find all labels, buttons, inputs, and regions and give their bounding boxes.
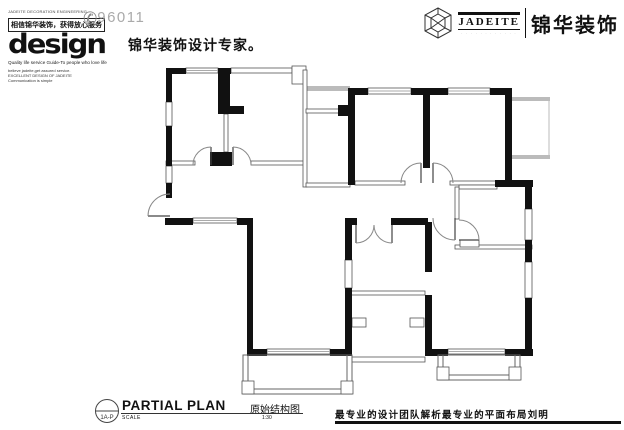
sub-line: Communication is simple: [8, 78, 138, 83]
title-underline: [121, 413, 303, 414]
balcony-right: [437, 355, 521, 380]
structural-walls: [165, 68, 533, 356]
jadeite-logo-block: JADEITE · · · · · · · · · · · · 锦华装饰: [423, 7, 619, 39]
logo-divider: [525, 8, 526, 38]
ledge: [512, 155, 550, 159]
drawing-tag-bubble: 1A-P: [94, 398, 120, 424]
drawing-sheet: JADEITE DECORATION ENGINEERING 相信锦华装饰，获得…: [0, 0, 624, 430]
floor-plan-drawing: [140, 55, 556, 403]
jadeite-wordmark: JADEITE · · · · · · · · · · · ·: [458, 12, 520, 35]
designer-note-cn: 最专业的设计团队解析最专业的平面布局刘明: [335, 407, 549, 421]
plan-title-en: PARTIAL PLAN: [122, 398, 226, 413]
brand-name-cn: 锦华装饰: [531, 9, 619, 38]
ledge: [512, 97, 550, 101]
gem-icon: [423, 7, 453, 39]
balcony-left: [242, 355, 353, 394]
scale-label: SCALE: [122, 415, 141, 421]
company-sub-lines: believe jadeite,get assured service. EXC…: [8, 68, 138, 84]
wordmark-top-bar: [458, 12, 520, 15]
phone-number: 96011: [97, 9, 145, 26]
company-tagline: Quality life service Guide-To people who…: [8, 60, 138, 65]
drawing-tag-text: 1A-P: [100, 415, 113, 421]
brand-slogan-cn: 锦华装饰设计专家。: [128, 35, 263, 55]
beam: [306, 86, 350, 91]
phone-icon: ✆: [83, 9, 97, 28]
service-phone: ✆96011: [83, 9, 145, 29]
jadeite-subtext: · · · · · · · · · · · ·: [458, 29, 520, 35]
design-logo: design: [8, 33, 138, 56]
jadeite-text: JADEITE: [458, 16, 520, 28]
footer-bar: [335, 421, 621, 424]
scale-value: 1:30: [262, 415, 272, 421]
